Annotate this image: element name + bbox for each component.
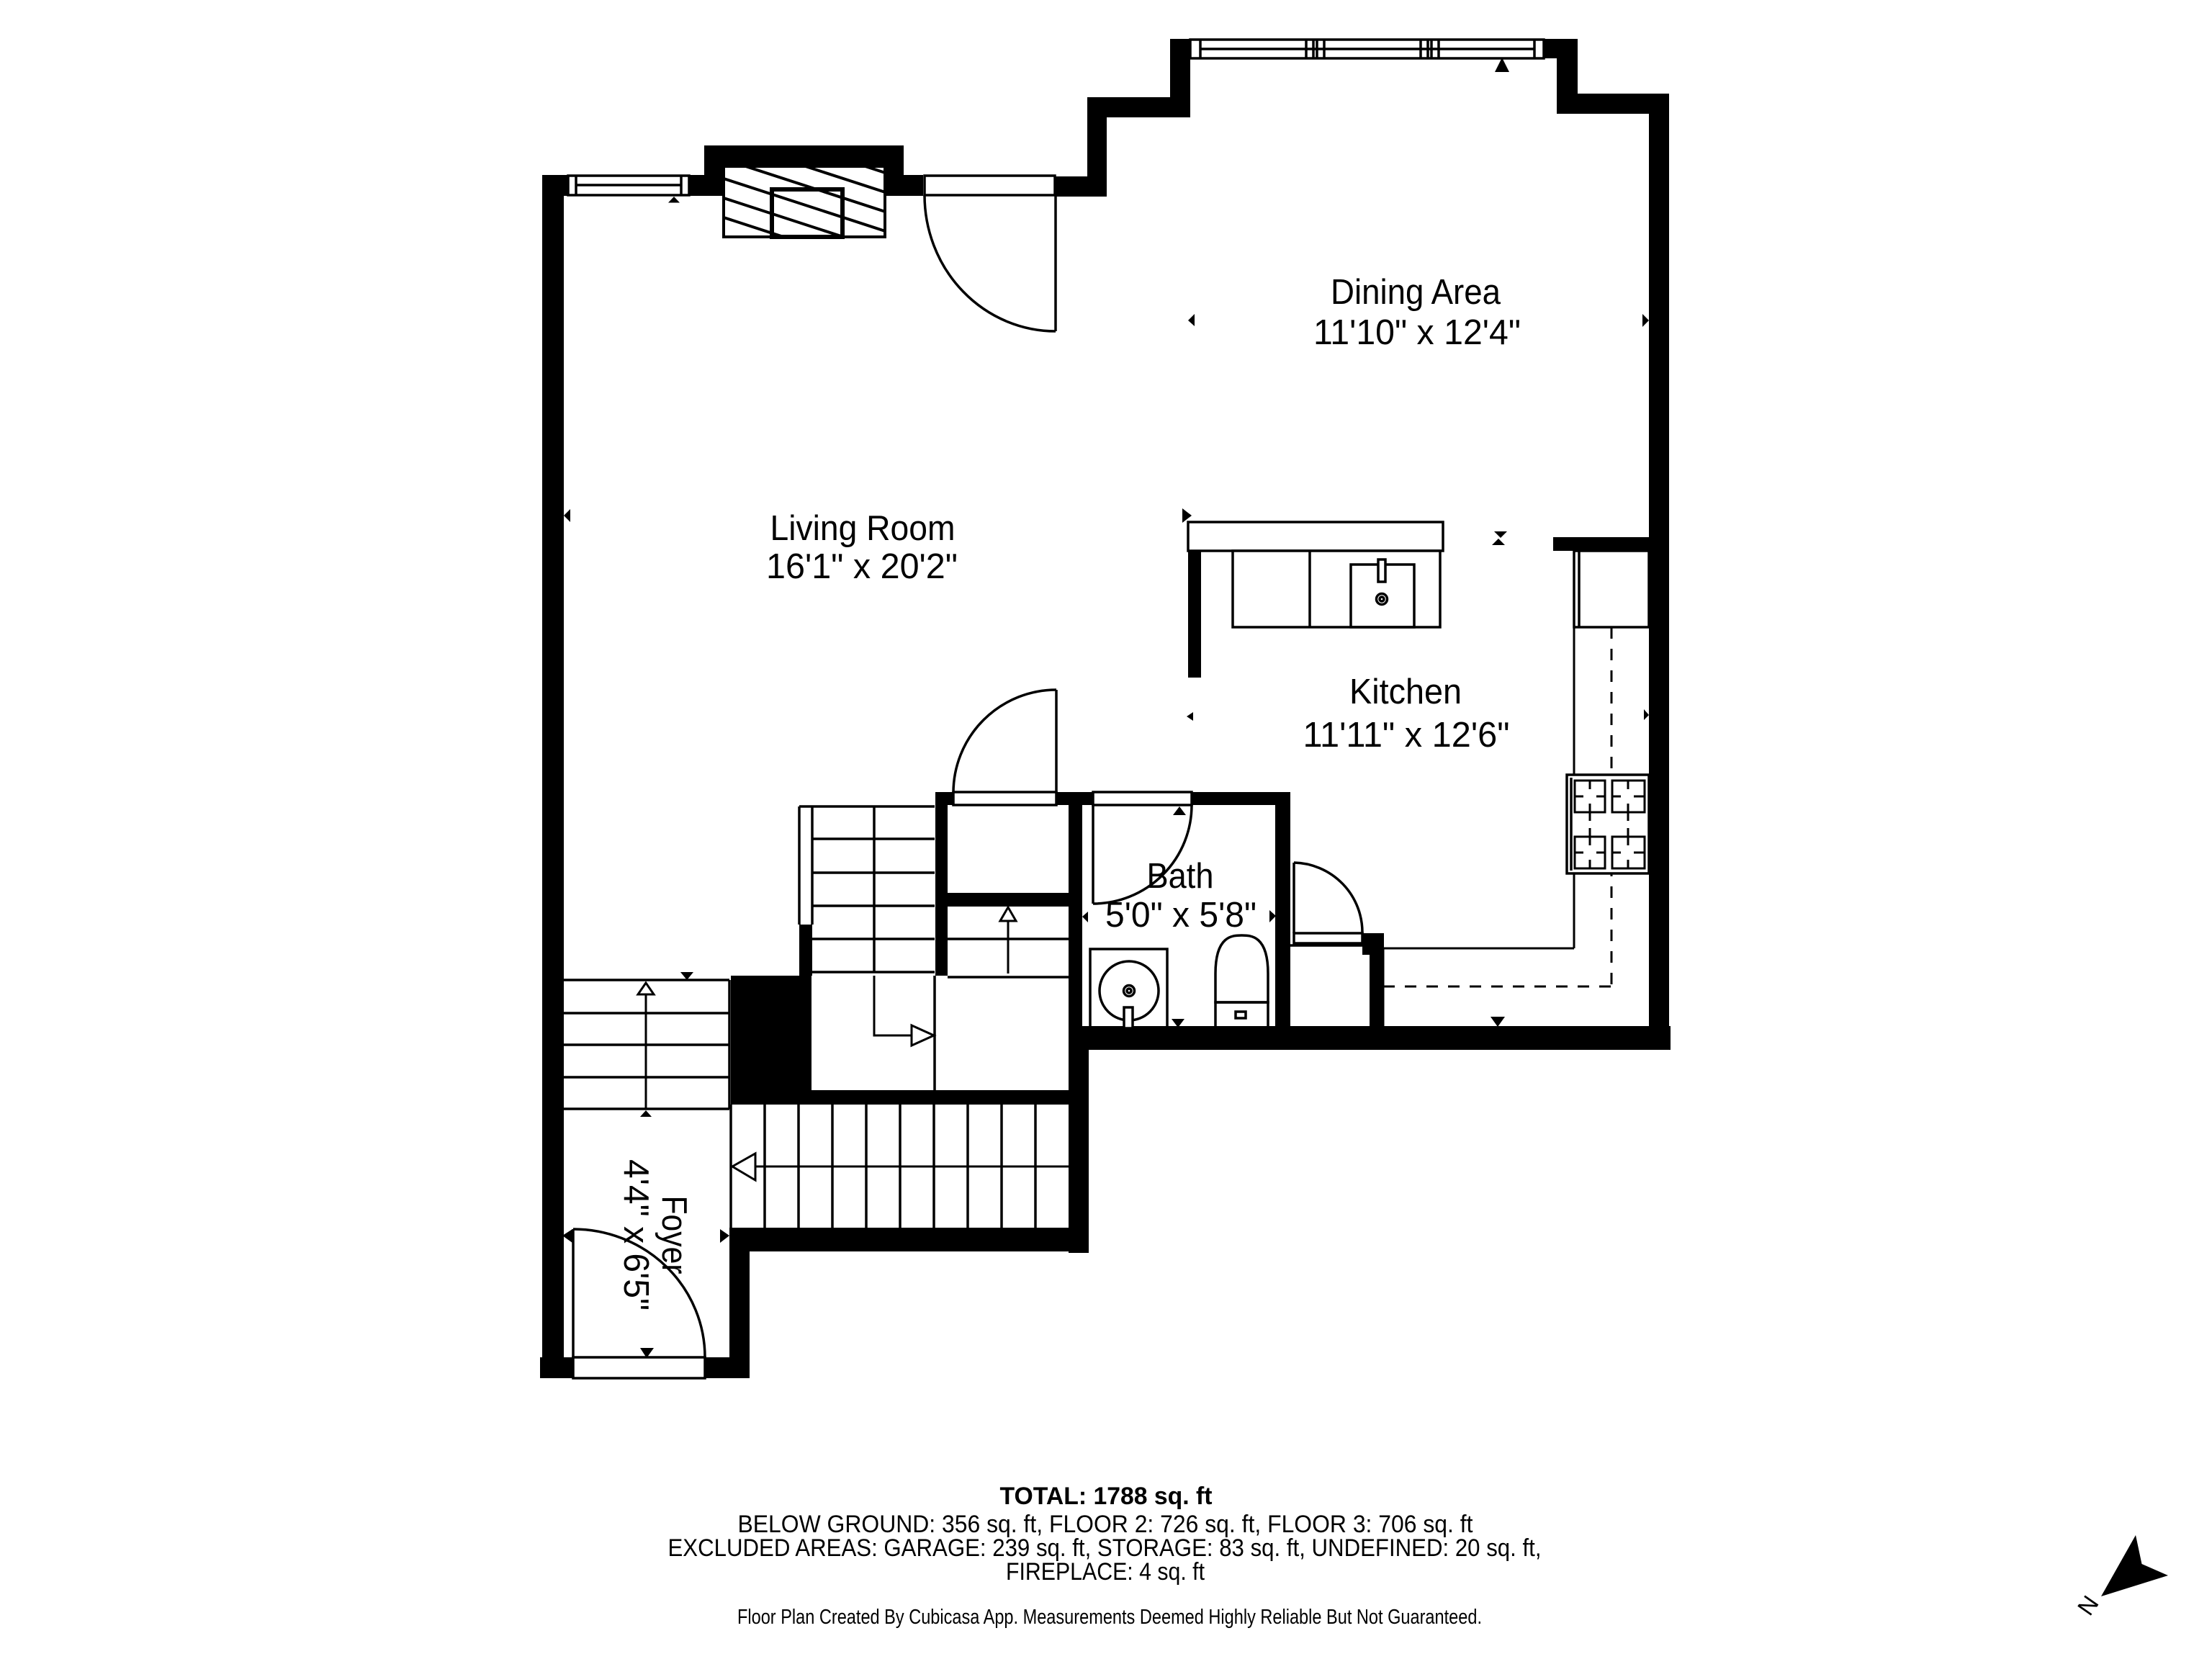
svg-text:Dining Area: Dining Area (1331, 273, 1501, 312)
svg-text:Bath: Bath (1147, 857, 1214, 896)
svg-text:Kitchen: Kitchen (1349, 673, 1462, 711)
svg-text:FIREPLACE: 4 sq. ft: FIREPLACE: 4 sq. ft (1006, 1558, 1205, 1586)
svg-text:Living Room: Living Room (770, 509, 956, 548)
svg-text:11'11" x 12'6": 11'11" x 12'6" (1303, 716, 1510, 755)
svg-text:11'10" x 12'4": 11'10" x 12'4" (1313, 313, 1521, 352)
svg-text:16'1" x 20'2": 16'1" x 20'2" (766, 547, 958, 586)
svg-text:Floor Plan Created By Cubicasa: Floor Plan Created By Cubicasa App. Meas… (737, 1606, 1482, 1629)
svg-text:TOTAL: 1788 sq. ft: TOTAL: 1788 sq. ft (1000, 1483, 1213, 1510)
svg-text:5'0" x 5'8": 5'0" x 5'8" (1105, 896, 1256, 935)
